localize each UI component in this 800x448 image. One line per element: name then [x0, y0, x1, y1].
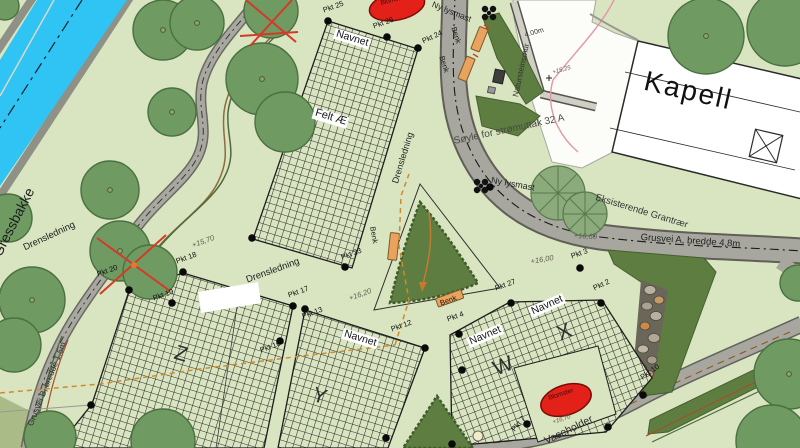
elevation-label: +16,60	[574, 232, 598, 241]
site-plan: Gressbakke Grusvei B, bredde 1,5m Grusve…	[0, 0, 800, 448]
holder-marker	[473, 431, 483, 441]
cross-center	[131, 262, 137, 268]
structure-box	[493, 69, 505, 84]
structure-box-small	[487, 86, 495, 93]
roof-cross-symbol	[749, 129, 783, 163]
bench-label: Benk	[368, 226, 379, 244]
